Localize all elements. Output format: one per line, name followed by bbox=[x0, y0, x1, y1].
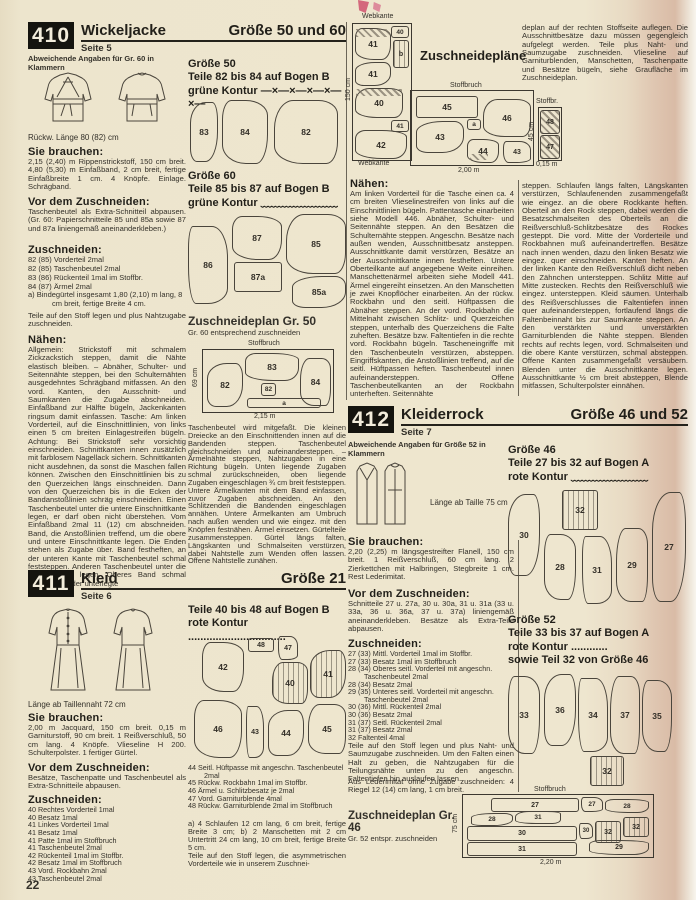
cut-item: 29 (35) Unteres seitl. Vorderteil mit an… bbox=[348, 688, 514, 703]
garment-sketch-jumper bbox=[348, 460, 422, 530]
cut-item: 43 Taschenbeutel 2mal bbox=[28, 875, 186, 883]
print-mark bbox=[358, 0, 369, 13]
pieces-cluster-411: 42 48 47 40 41 46 43 44 45 bbox=[188, 636, 346, 760]
before-text: Taschenbeutel als Extra-Schnitteil abpau… bbox=[28, 208, 186, 233]
small-plan-fold-label: Stoffbr. bbox=[536, 98, 558, 105]
model-number-badge: 412 bbox=[348, 406, 394, 433]
size46-title: Größe 46 Teile 27 bis 32 auf Bogen A rot… bbox=[508, 444, 688, 484]
fold-label: Stoffbruch bbox=[248, 340, 280, 347]
column-rule bbox=[518, 180, 519, 396]
cut-note: Teile auf den Stoff legen und plus Nahtz… bbox=[28, 312, 186, 329]
size60-pieces: 86 87 87a 85 85a bbox=[188, 214, 346, 308]
cut-continuation-text: deplan auf der rechten Stoffseite aufleg… bbox=[522, 24, 688, 82]
cut-list: 40 Rechtes Vorderteil 1mal 40 Besatz 1ma… bbox=[28, 806, 186, 882]
fold-label: Stoffbruch bbox=[450, 82, 482, 89]
cut-list: 27 (33) Mittl. Vorderteil 1mal im Stoffb… bbox=[348, 650, 514, 742]
length-note: Länge ab Taillennaht 72 cm bbox=[28, 700, 126, 709]
before-text: Schnitteile 27 u. 27a, 30 u. 30a, 31 u. … bbox=[348, 600, 514, 633]
contour-marks: ﹏﹏﹏﹏﹏﹏﹏ bbox=[571, 471, 648, 483]
selvage-label-top: Webkante bbox=[362, 13, 393, 20]
header-rule bbox=[81, 40, 346, 42]
plans-title: Zuschneidepläne bbox=[420, 48, 526, 63]
sew-text-part1: Allgemein: Strickstoff mit schmalem Zick… bbox=[28, 346, 186, 588]
cutting-plan-411-right: 45 46 a 43 44 43 bbox=[410, 90, 534, 166]
fold-label: Stoffbruch bbox=[534, 786, 566, 793]
model-page-ref: Seite 6 bbox=[81, 591, 346, 602]
size60-title: Größe 60 Teile 85 bis 87 auf Bogen B grü… bbox=[188, 170, 346, 210]
model-number-badge: 411 bbox=[28, 570, 74, 597]
plan-length-label: 2,00 m bbox=[458, 167, 479, 174]
cutting-plan-411-left: 40 41 b 41 40 41 42 bbox=[352, 23, 412, 161]
cutting-plan-412: 27 27 28 28 31 30 30 32 32 31 29 bbox=[462, 794, 654, 858]
variant-note: Abweichende Angaben für Größe 52 in Klam… bbox=[348, 440, 514, 458]
cut-item: a) Bindegürtel insgesamt 1,80 (2,10) m l… bbox=[28, 291, 186, 309]
magazine-page: 410 Wickeljacke Größe 50 und 60 Seite 5 … bbox=[0, 0, 696, 900]
plan50-title: Zuschneideplan Gr. 50 Gr. 60 entsprechen… bbox=[188, 314, 346, 337]
model-size: Größe 21 bbox=[281, 570, 346, 587]
plan-height-label: 75 cm bbox=[452, 814, 459, 833]
plan-height-label: 69 cm bbox=[192, 368, 199, 387]
size52-pieces: 33 36 34 37 35 32 bbox=[506, 672, 688, 790]
sew-continuation-411: steppen. Schlaufen längs falten, Längska… bbox=[522, 182, 688, 391]
loops-cuffs-note: a) 4 Schlaufen 12 cm lang, 6 cm breit, f… bbox=[188, 820, 346, 851]
small-plan-width-label: 0,15 m bbox=[536, 161, 557, 168]
plan-width-label: 150 cm bbox=[345, 78, 352, 101]
garment-sketch-jacket bbox=[30, 70, 180, 128]
cut-list: 82 (85) Vorderteil 2mal 82 (85) Taschenb… bbox=[28, 256, 186, 309]
model-title: Kleiderrock bbox=[401, 406, 484, 423]
model-411-header: 411 Kleid Größe 21 Seite 6 bbox=[28, 570, 346, 602]
size50-pieces: 83 84 82 bbox=[188, 100, 346, 164]
model-410-header: 410 Wickeljacke Größe 50 und 60 Seite 5 bbox=[28, 22, 346, 54]
length-note: Länge ab Taille 75 cm bbox=[430, 498, 508, 507]
model-size: Größe 50 und 60 bbox=[228, 22, 346, 39]
layout-note: Teile auf den Stoff legen, die asymmetri… bbox=[188, 852, 346, 868]
plan-width-label: 2,20 m bbox=[540, 859, 561, 866]
cutting-plan-410: 82 83 82 a 84 bbox=[202, 349, 334, 413]
need-text: 2,00 m Jacquard, 150 cm breit. 0,15 m Ga… bbox=[28, 724, 186, 757]
cut-item: 28 (34) Oberes seitl. Vorderteil mit ang… bbox=[348, 665, 514, 680]
cut-item: 48 Rückw. Garniturblende 2mal im Stoffbr… bbox=[188, 802, 346, 810]
need-text: 2,15 (2,40) m Rippenstrickstoff, 150 cm … bbox=[28, 158, 186, 191]
plan-width-label: 2,15 m bbox=[254, 413, 275, 420]
model-size: Größe 46 und 52 bbox=[570, 406, 688, 423]
model-page-ref: Seite 5 bbox=[81, 43, 346, 54]
contour-marks: ﹏﹏﹏﹏﹏﹏﹏ bbox=[261, 197, 338, 209]
model-page-ref: Seite 7 bbox=[401, 427, 688, 438]
selvage-label-bottom: Webkante bbox=[358, 160, 389, 167]
before-text: Besätze, Taschenpatte und Taschenbeutel … bbox=[28, 774, 186, 791]
model-title: Kleid bbox=[81, 570, 118, 587]
print-mark bbox=[373, 2, 381, 12]
header-rule bbox=[401, 424, 688, 426]
back-length-note: Rückw. Länge 80 (82) cm bbox=[28, 133, 186, 142]
garment-sketch-dress bbox=[30, 606, 190, 696]
header-rule bbox=[81, 588, 346, 590]
sew-text-411: Am linken Vorderteil für die Tasche eine… bbox=[350, 190, 514, 399]
small-plan-height-label: 45 cm bbox=[528, 122, 535, 141]
model-number-badge: 410 bbox=[28, 22, 74, 49]
plan46-title: Zuschneideplan Gr. 46 Gr. 52 entspr. zus… bbox=[348, 810, 458, 843]
model-412-header: 412 Kleiderrock Größe 46 und 52 Seite 7 bbox=[348, 406, 688, 438]
cut-note-2: Aus Lederimitat ohne Zugabe zuschneiden:… bbox=[348, 778, 514, 795]
contour-marks: ............ bbox=[571, 641, 608, 653]
cut-list-2: 44 Seitl. Hüftpasse mit angeschn. Tasche… bbox=[188, 764, 346, 810]
need-text: 2,20 (2,25) m längsgestreifter Flanell, … bbox=[348, 548, 514, 581]
page-number: 22 bbox=[26, 878, 39, 892]
cutting-plan-garniture: 48 47 bbox=[538, 107, 562, 161]
cut-item: 44 Seitl. Hüftpasse mit angeschn. Tasche… bbox=[188, 764, 346, 779]
size52-title: Größe 52 Teile 33 bis 37 auf Bogen A rot… bbox=[508, 614, 688, 668]
size46-pieces: 30 32 28 31 29 27 bbox=[506, 488, 688, 610]
model-title: Wickeljacke bbox=[81, 22, 166, 39]
sew-text-part2: Taschenbeutel wird mitgefaßt. Die kleine… bbox=[188, 424, 346, 565]
